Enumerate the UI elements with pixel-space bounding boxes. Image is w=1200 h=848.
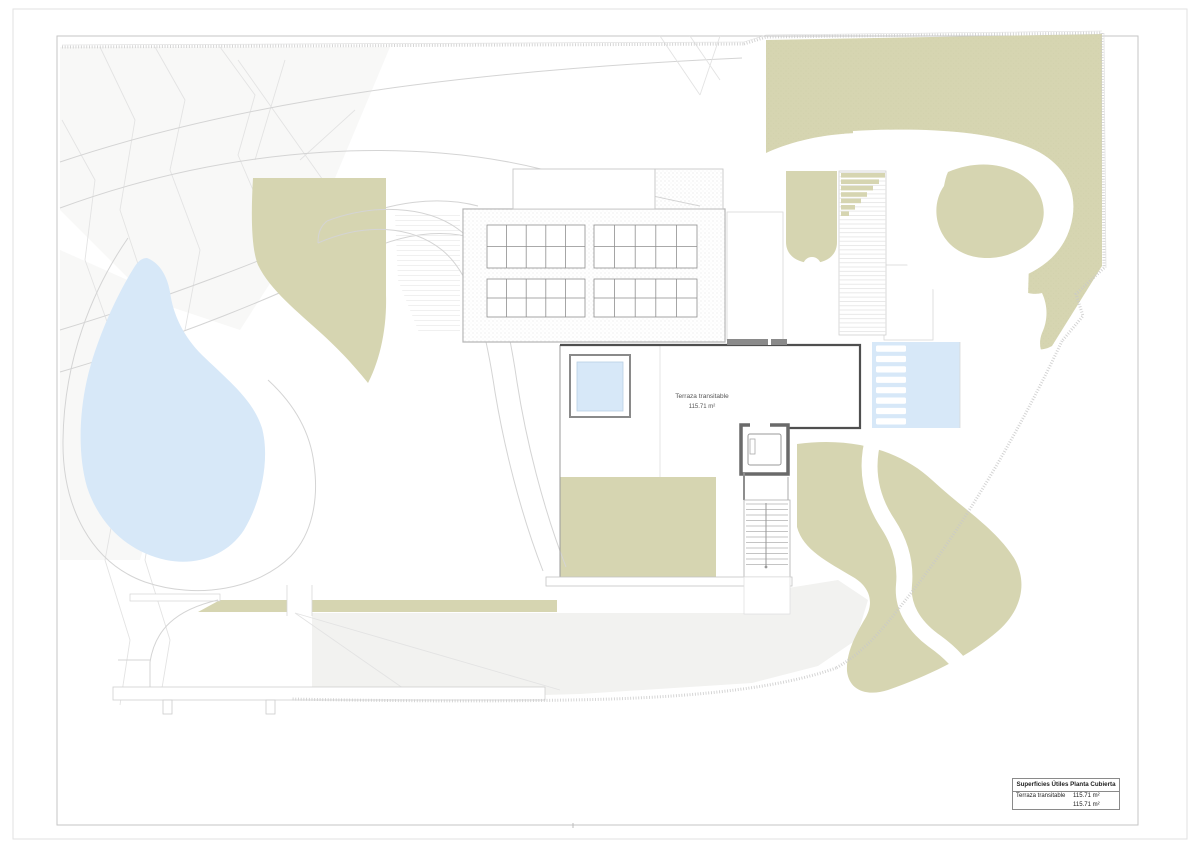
path-crossing bbox=[287, 596, 312, 616]
cascade-pool bbox=[872, 342, 960, 428]
legend-title: Superficies Útiles Planta Cubierta bbox=[1013, 779, 1119, 792]
roof-garden bbox=[560, 477, 716, 577]
terrace-pool bbox=[570, 355, 630, 417]
legend-total-spacer bbox=[1016, 801, 1073, 810]
gravel-roof bbox=[655, 169, 723, 209]
plan-sheet: Terraza transitable 115.71 m² Superficie… bbox=[0, 0, 1200, 848]
legend-total-row: 115.71 m² bbox=[1013, 801, 1119, 810]
elevator-shaft bbox=[741, 421, 788, 474]
patch-notch bbox=[803, 257, 821, 275]
elevator-door-opening bbox=[750, 421, 770, 427]
beam bbox=[727, 339, 787, 345]
wall-post bbox=[163, 700, 172, 714]
stair-arrow-dot bbox=[765, 566, 768, 569]
terrace-label: Terraza transitable 115.71 m² bbox=[675, 393, 729, 410]
retaining-wall bbox=[113, 687, 545, 700]
legend-row: Terraza transitable 115.71 m² bbox=[1013, 792, 1119, 801]
legend-total-value: 115.71 m² bbox=[1073, 801, 1116, 810]
small-wall bbox=[130, 594, 220, 601]
legend-table: Superficies Útiles Planta Cubierta Terra… bbox=[1012, 778, 1120, 810]
hedge-strip-right bbox=[312, 600, 557, 612]
garden-patch bbox=[786, 171, 837, 263]
roof-stair bbox=[744, 473, 790, 577]
terrace-label-name: Terraza transitable bbox=[675, 393, 729, 400]
wall-post bbox=[266, 700, 275, 714]
terrace-label-area: 115.71 m² bbox=[689, 404, 716, 410]
legend-row-value: 115.71 m² bbox=[1073, 792, 1116, 801]
legend-row-label: Terraza transitable bbox=[1016, 792, 1073, 801]
garden-wedge bbox=[252, 178, 386, 383]
roof-volume bbox=[513, 169, 655, 209]
lower-landing bbox=[744, 577, 790, 614]
beam-gap bbox=[768, 339, 771, 345]
skylight-roof bbox=[463, 169, 725, 342]
site-plan-drawing: Terraza transitable 115.71 m² bbox=[0, 0, 1200, 848]
